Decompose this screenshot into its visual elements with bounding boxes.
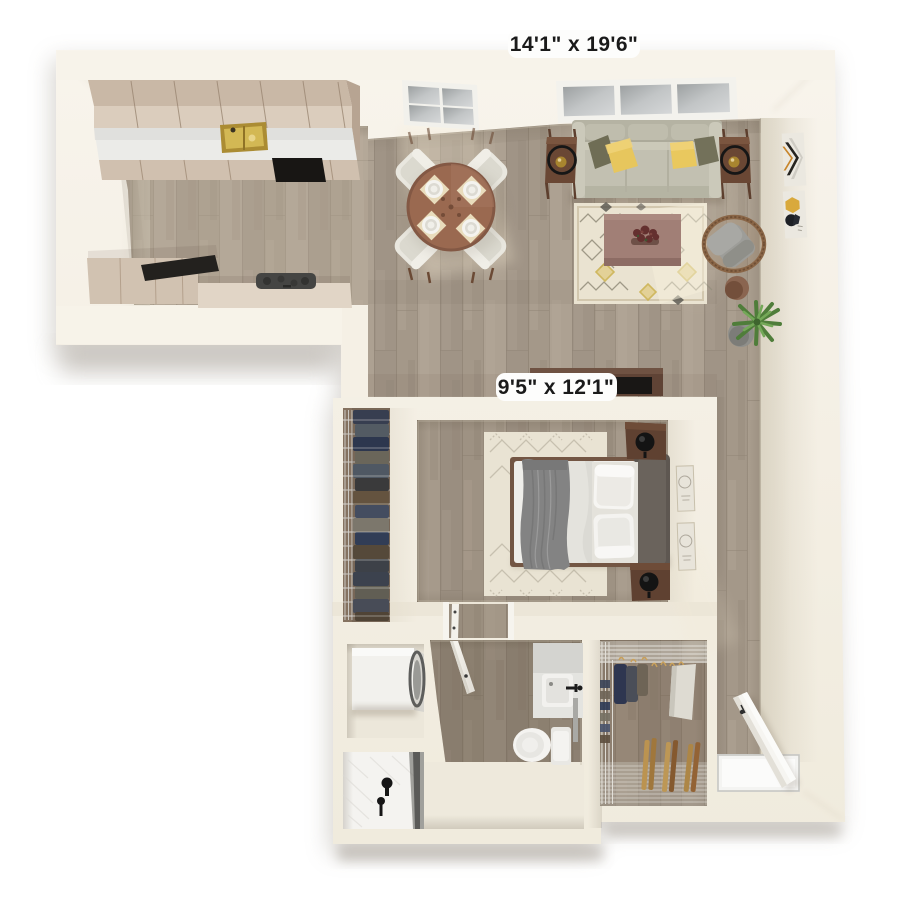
svg-text:9'5" x 12'1": 9'5" x 12'1": [498, 376, 614, 399]
svg-text:14'1" x 19'6": 14'1" x 19'6": [510, 33, 639, 56]
